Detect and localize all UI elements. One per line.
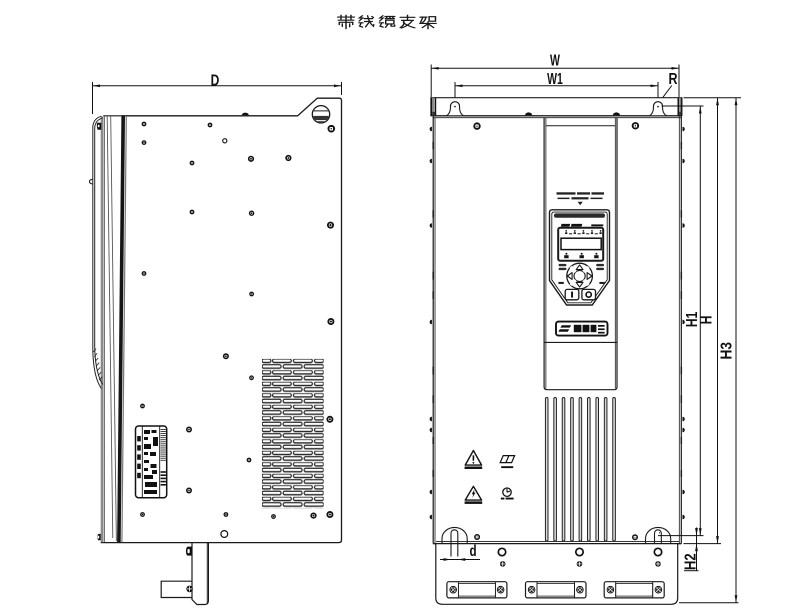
svg-text:W: W — [550, 53, 560, 70]
svg-text:W1: W1 — [547, 71, 563, 88]
svg-text:H2: H2 — [683, 553, 700, 570]
svg-text:R: R — [669, 71, 678, 88]
svg-text:H3: H3 — [719, 342, 736, 360]
svg-text:H: H — [699, 316, 716, 325]
svg-text:d: d — [469, 543, 476, 560]
svg-text:D: D — [211, 72, 220, 89]
